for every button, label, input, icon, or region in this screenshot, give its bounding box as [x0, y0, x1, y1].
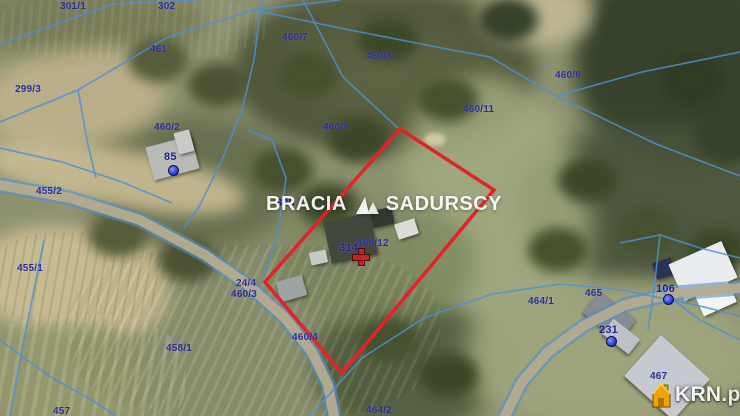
subject-location-marker: [353, 249, 369, 265]
parcel-label-460-6: 460/6: [555, 70, 581, 81]
parcel-label-464-1: 464/1: [528, 296, 554, 307]
parcel-label-455-1: 455/1: [17, 263, 43, 274]
parcel-label-301-1: 301/1: [60, 1, 86, 12]
krn-text-suffix: .pl: [721, 383, 740, 406]
parcel-label-24-4: 24/4: [236, 278, 256, 289]
parcel-label-460-2: 460/2: [154, 122, 180, 133]
parcel-label-460-12: 460/12: [357, 238, 389, 249]
parcel-label-299-3: 299/3: [15, 84, 41, 95]
address-point-icon: [663, 294, 674, 305]
address-point-icon: [168, 165, 179, 176]
krn-house-icon: [650, 381, 673, 408]
address-label-106: 106: [656, 283, 675, 295]
parcel-label-460-3: 460/3: [231, 289, 257, 300]
parcel-label-461: 461: [150, 44, 167, 55]
parcel-label-460-8: 460/8: [366, 51, 392, 62]
watermark: BRACIA SADURSCY: [266, 193, 502, 216]
address-label-231: 231: [599, 324, 618, 336]
map-canvas: 301/1302461299/3460/7460/8460/6460/11460…: [0, 0, 740, 416]
parcel-label-457: 457: [53, 406, 70, 416]
krn-text-main: KRN: [675, 383, 721, 406]
krn-logo-text: KRN.pl: [675, 383, 740, 407]
address-point-icon: [606, 336, 617, 347]
address-label-85: 85: [164, 151, 177, 163]
parcel-label-460-9: 460/9: [323, 122, 349, 133]
parcel-label-455-2: 455/2: [36, 186, 62, 197]
parcel-label-302: 302: [158, 1, 175, 12]
parcel-label-460-4: 460/4: [292, 332, 318, 343]
watermark-text-right: SADURSCY: [386, 193, 502, 216]
parcel-label-460-7: 460/7: [282, 32, 308, 43]
watermark-logo-icon: [354, 195, 379, 214]
krn-logo: KRN.pl: [650, 381, 740, 408]
parcel-label-460-11: 460/11: [463, 104, 494, 115]
parcel-label-464-2: 464/2: [366, 405, 392, 416]
watermark-text-left: BRACIA: [266, 193, 347, 216]
parcel-label-465: 465: [585, 288, 602, 299]
parcel-label-458-1: 458/1: [166, 343, 192, 354]
